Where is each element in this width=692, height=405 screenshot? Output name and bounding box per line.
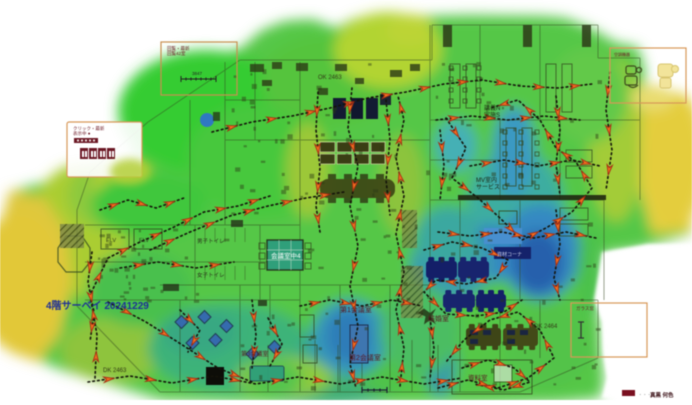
svg-text:ガラス窓: ガラス窓 — [576, 305, 594, 312]
svg-text:第3会議室: 第3会議室 — [241, 350, 268, 358]
svg-text:DK 2464: DK 2464 — [534, 324, 558, 330]
svg-text:サービス: サービス — [476, 183, 500, 191]
svg-text:会議室中4: 会議室中4 — [271, 251, 301, 260]
svg-text:第2会議室: 第2会議室 — [349, 353, 381, 362]
svg-text:OK 2463: OK 2463 — [318, 75, 342, 81]
svg-text:女子トイレ: 女子トイレ — [197, 271, 225, 279]
svg-text:資料室: 資料室 — [468, 373, 488, 382]
svg-text:結婚室: 結婚室 — [428, 314, 449, 323]
svg-text:真黒 何色: 真黒 何色 — [650, 391, 674, 399]
svg-text:ELV: ELV — [139, 238, 149, 244]
svg-text:講義N: 講義N — [484, 104, 500, 112]
svg-text:ELV: ELV — [106, 238, 116, 244]
svg-text:MV室内: MV室内 — [476, 176, 497, 184]
svg-text:実施S: 実施S — [484, 111, 500, 119]
svg-text:空調機器: 空調機器 — [614, 51, 630, 57]
svg-text:資材コーナ: 資材コーナ — [497, 251, 522, 258]
svg-text:表示中 ●: 表示中 ● — [73, 130, 91, 137]
svg-text:男子トイレ: 男子トイレ — [197, 238, 225, 245]
svg-text:3847: 3847 — [192, 71, 203, 76]
svg-text:4階サーベイ 20241229: 4階サーベイ 20241229 — [46, 299, 149, 312]
svg-text:第1会議室: 第1会議室 — [340, 305, 372, 314]
svg-text:回覧42室: 回覧42室 — [167, 50, 186, 57]
svg-text:DK 2463: DK 2463 — [103, 368, 127, 374]
